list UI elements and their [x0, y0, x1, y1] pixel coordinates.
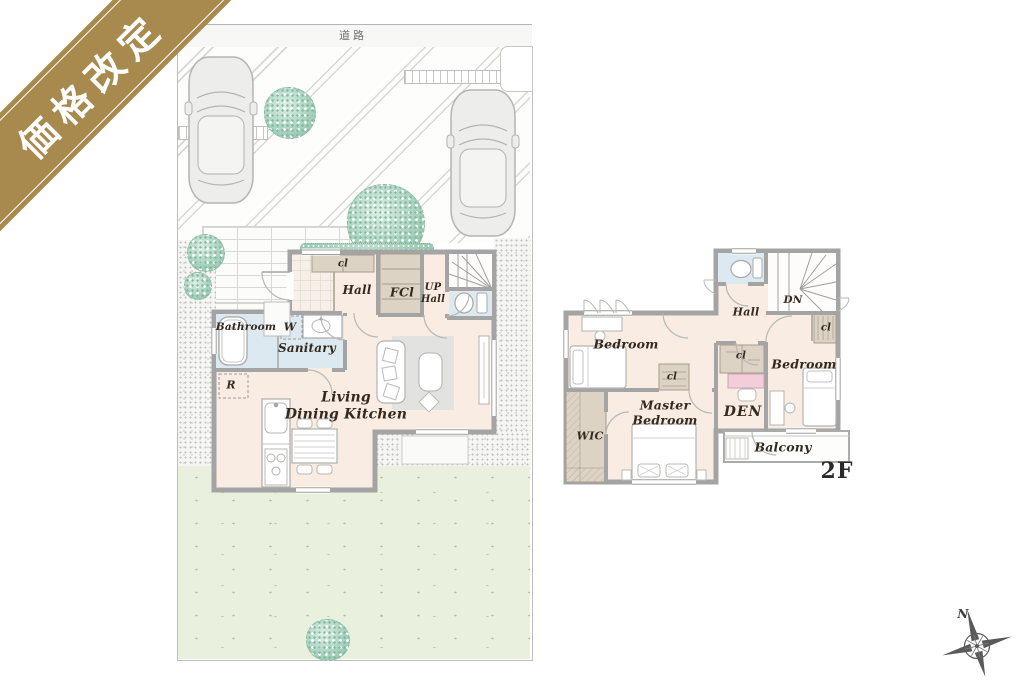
- room-label-sanitary: Sanitary: [278, 341, 336, 355]
- plan-vector-layer: [0, 0, 1024, 682]
- room-label-closet-west: cl: [667, 372, 677, 383]
- bed-east: [803, 368, 836, 426]
- car-icon: [185, 57, 257, 203]
- room-label-front-closet: FCl: [390, 285, 414, 300]
- room-label-hall-2f: Hall: [733, 306, 760, 319]
- washbasin-icon: [303, 315, 342, 338]
- master-line2: Bedroom: [632, 413, 697, 428]
- entrance-hall-line1: UP: [421, 282, 445, 294]
- toilet-icon-1f: [455, 293, 487, 313]
- master-bed: [622, 424, 706, 480]
- coffee-table: [419, 353, 442, 391]
- room-label-closet-1f: cl: [338, 259, 348, 270]
- car-icon: [447, 90, 519, 236]
- terrace-slab: [402, 436, 468, 464]
- room-label-bedroom-east: Bedroom: [771, 357, 836, 372]
- room-label-closet-den: cl: [736, 351, 746, 362]
- room-label-washer: W: [284, 321, 297, 334]
- floor-tag-2f: 2F: [821, 458, 854, 484]
- master-line1: Master: [632, 398, 697, 413]
- bed-west: [570, 346, 626, 388]
- compass-north-label: N: [957, 607, 968, 621]
- floorplan-page: 道路 cl Hall FCl UP Hall Bathroom W Sanita…: [0, 0, 1024, 682]
- room-label-den: DEN: [724, 404, 763, 420]
- room-label-hall-1f: Hall: [342, 283, 371, 297]
- room-label-balcony: Balcony: [754, 440, 811, 455]
- compass-icon: [932, 600, 1020, 682]
- room-label-dn: DN: [783, 294, 802, 306]
- stairs-1f: [449, 254, 492, 289]
- ldk-line2: Dining Kitchen: [285, 406, 407, 423]
- tv-board: [479, 336, 489, 404]
- room-label-bedroom-west: Bedroom: [593, 337, 658, 352]
- entrance-hall-line2: Hall: [421, 294, 445, 306]
- room-label-entrance-hall: UP Hall: [421, 282, 445, 306]
- room-label-refrigerator: R: [226, 379, 235, 392]
- ldk-line1: Living: [285, 389, 407, 406]
- room-label-wic: WIC: [577, 430, 604, 443]
- entrance-door: [262, 272, 290, 300]
- room-label-ldk: Living Dining Kitchen: [285, 389, 407, 422]
- room-label-closet-east: cl: [821, 323, 831, 334]
- road-label: 道路: [339, 27, 367, 43]
- room-label-bathroom: Bathroom: [216, 321, 276, 333]
- room-label-master-bedroom: Master Bedroom: [632, 398, 697, 428]
